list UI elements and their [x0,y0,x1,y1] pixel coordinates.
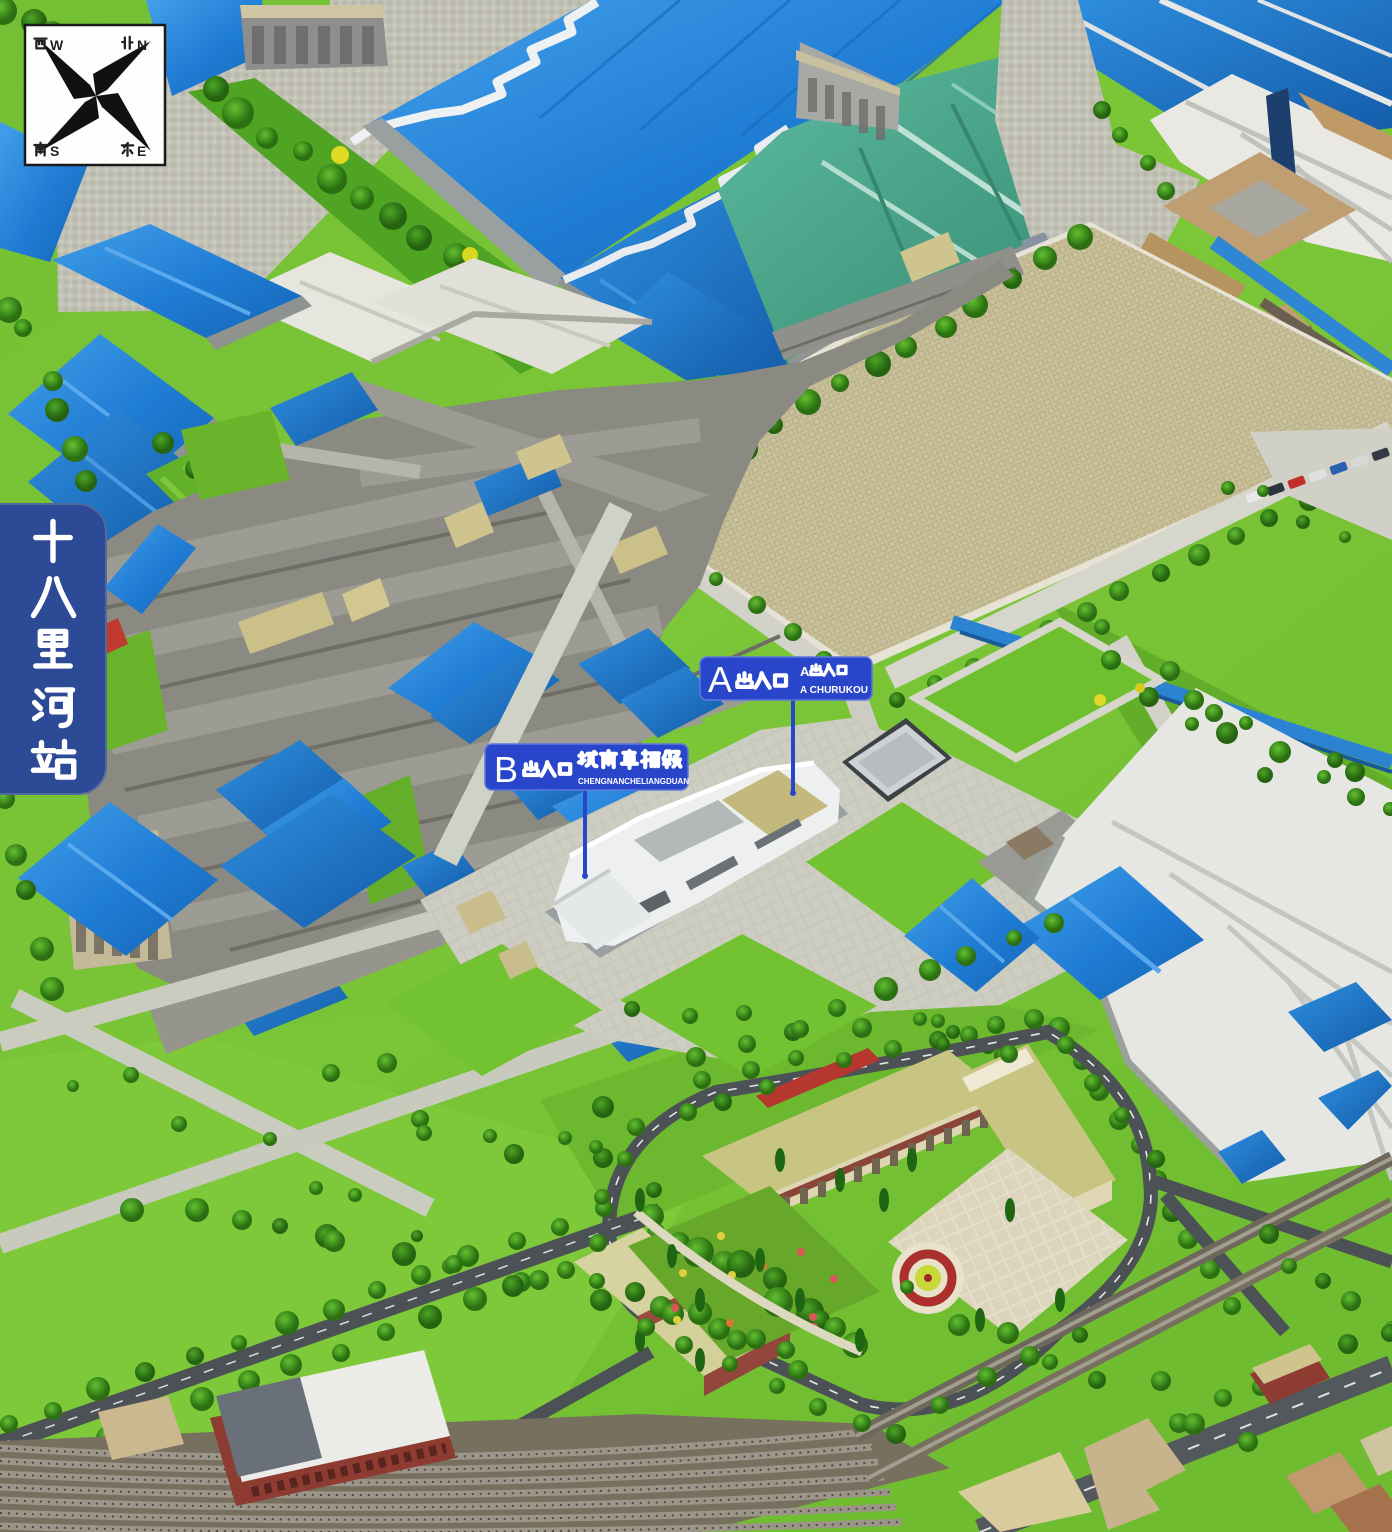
svg-text:N: N [137,37,147,53]
svg-text:B: B [494,749,518,790]
svg-text:A: A [800,664,810,679]
svg-text:W: W [50,37,64,53]
svg-text:E: E [137,143,146,159]
svg-text:S: S [50,143,59,159]
svg-text:CHENGNANCHELIANGDUAN: CHENGNANCHELIANGDUAN [578,777,689,786]
svg-text:A CHURUKOU: A CHURUKOU [800,685,868,696]
svg-text:A: A [708,659,732,700]
